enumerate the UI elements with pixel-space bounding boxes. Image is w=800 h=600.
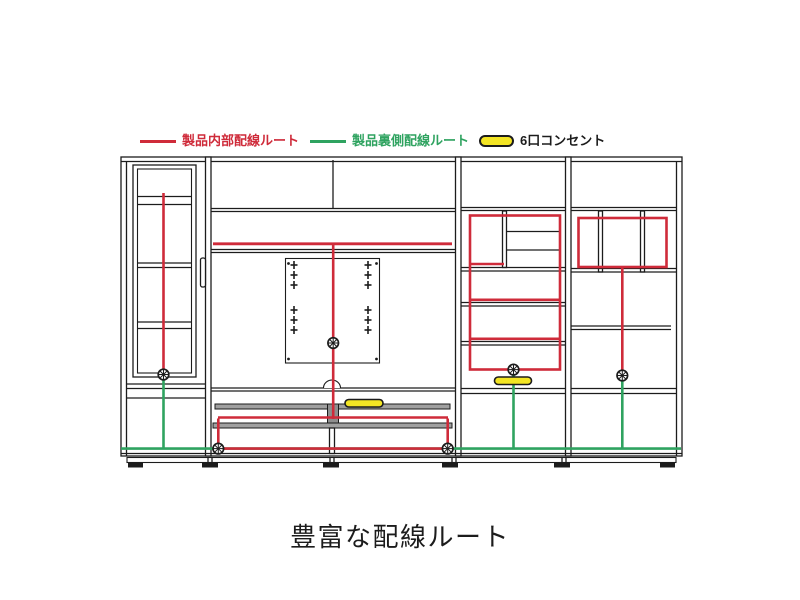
left-glass-door-cabinet xyxy=(127,165,206,398)
shelf-pin-holes xyxy=(291,261,372,334)
wall-unit-frame xyxy=(121,157,682,468)
cable-grommets xyxy=(158,338,627,454)
wiring-diagram-page: 製品内部配線ルート 製品裏側配線ルート 6口コンセント xyxy=(0,0,800,600)
door-handle xyxy=(201,258,206,287)
internal-wiring-routes xyxy=(164,193,667,449)
cable-grommet xyxy=(213,443,224,454)
cable-grommet xyxy=(158,369,169,380)
power-strip-center xyxy=(345,400,383,408)
right-end-cabinet xyxy=(571,208,677,394)
power-strip-right xyxy=(495,377,532,385)
caption: 豊富な配線ルート xyxy=(0,517,800,554)
cable-grommet xyxy=(617,370,628,381)
internal-route-frame-right xyxy=(579,218,667,267)
power-strips xyxy=(345,377,532,407)
internal-route-frame-mid xyxy=(470,216,560,370)
cable-grommet xyxy=(328,338,339,349)
cabinet-drawing xyxy=(0,0,800,600)
cable-grommet xyxy=(442,443,453,454)
tv-board-shelf-bottom xyxy=(213,423,452,428)
cable-grommet xyxy=(508,364,519,375)
feet xyxy=(128,463,675,468)
